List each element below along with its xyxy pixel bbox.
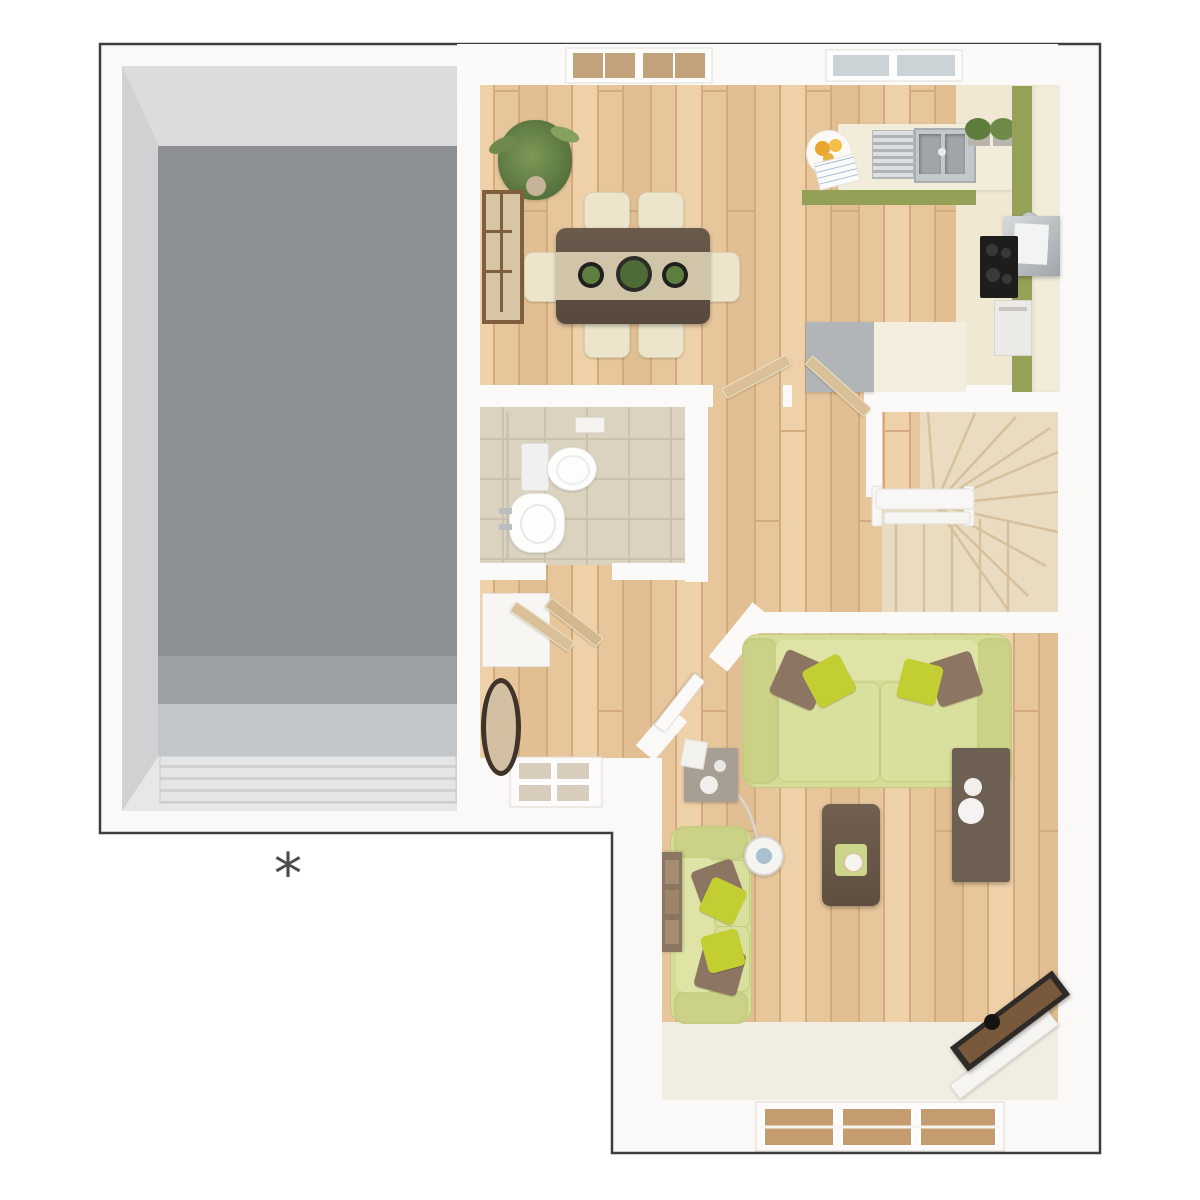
sofa-left bbox=[670, 826, 752, 1024]
herb-pot bbox=[968, 124, 990, 146]
oven bbox=[994, 300, 1032, 356]
dining-chair bbox=[584, 192, 630, 232]
kitchen-sink bbox=[914, 128, 976, 183]
decor-bowl bbox=[958, 798, 984, 824]
decor-bowl bbox=[964, 778, 982, 796]
floor-plan-canvas: * bbox=[0, 0, 1200, 1200]
floor-lamp-shade bbox=[744, 836, 784, 876]
tv-speaker bbox=[984, 1014, 1000, 1030]
hob bbox=[980, 236, 1018, 298]
coffee-table bbox=[822, 804, 880, 906]
stair-railing bbox=[872, 486, 974, 526]
panel-mirror bbox=[482, 190, 524, 324]
candle bbox=[843, 852, 864, 873]
faucet bbox=[938, 148, 946, 156]
planter bbox=[662, 262, 688, 288]
oval-mirror bbox=[481, 678, 521, 776]
drawer-chest bbox=[662, 852, 682, 952]
plan-asterisk-annotation: * bbox=[258, 840, 318, 910]
toilet-cistern bbox=[521, 443, 549, 491]
kitchen-window bbox=[826, 50, 962, 81]
tray bbox=[835, 844, 867, 876]
planter-large bbox=[616, 256, 652, 292]
dining-chair bbox=[584, 318, 630, 358]
front-door bbox=[510, 757, 602, 807]
garage-door bbox=[160, 756, 456, 803]
french-doors bbox=[566, 48, 712, 83]
draining-rack bbox=[872, 130, 914, 179]
floor-lamp-base bbox=[680, 738, 708, 770]
wash-basin bbox=[509, 493, 565, 553]
living-room-window bbox=[756, 1102, 1004, 1151]
wc-glass-screen bbox=[506, 412, 509, 560]
kitchen-cabinet-front bbox=[802, 190, 976, 205]
basin-tap bbox=[499, 508, 512, 514]
basin-tap bbox=[499, 524, 512, 530]
palm-plant bbox=[498, 120, 572, 200]
planter bbox=[578, 262, 604, 288]
dining-chair bbox=[638, 318, 684, 358]
wc-shelf bbox=[575, 417, 605, 433]
garage bbox=[122, 66, 457, 811]
toilet-bowl bbox=[547, 447, 597, 491]
dining-chair bbox=[638, 192, 684, 232]
plant-pot bbox=[526, 176, 546, 196]
media-sideboard bbox=[952, 748, 1010, 882]
dining-table bbox=[556, 228, 710, 324]
island-unit-cream bbox=[874, 322, 966, 392]
